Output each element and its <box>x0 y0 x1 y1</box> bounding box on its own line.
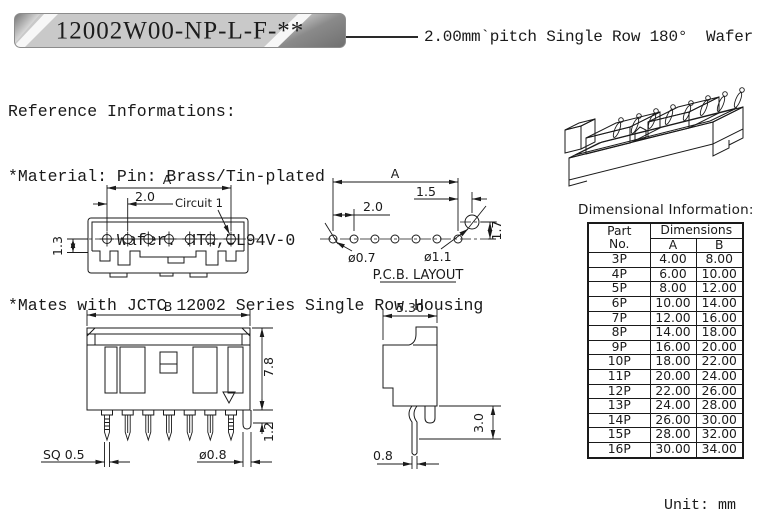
table-cell-a: 10.00 <box>650 296 696 311</box>
top-view-dim-a: A <box>163 172 172 187</box>
table-cell-a: 28.00 <box>650 428 696 443</box>
table-row: 13P24.0028.00 <box>588 399 743 414</box>
table-cell-a: 12.00 <box>650 311 696 326</box>
table-cell-b: 14.00 <box>696 296 743 311</box>
table-cell-part: 5P <box>588 282 650 297</box>
header-no: No. <box>609 237 629 251</box>
table-cell-part: 4P <box>588 267 650 282</box>
unit-label: Unit: mm <box>664 497 736 514</box>
side-view-drawing: 5.30 3.0 0.8 <box>355 295 550 487</box>
table-cell-b: 32.00 <box>696 428 743 443</box>
side-view-dim-tail: 3.0 <box>471 413 486 433</box>
header-part: Part <box>607 224 631 238</box>
table-row: 12P22.0026.00 <box>588 384 743 399</box>
table-cell-b: 34.00 <box>696 442 743 457</box>
table-cell-part: 7P <box>588 311 650 326</box>
table-cell-a: 16.00 <box>650 340 696 355</box>
table-cell-a: 6.00 <box>650 267 696 282</box>
table-row: 5P8.0012.00 <box>588 282 743 297</box>
table-cell-b: 30.00 <box>696 413 743 428</box>
side-view-dim-depth: 5.30 <box>396 300 424 315</box>
table-cell-a: 26.00 <box>650 413 696 428</box>
table-cell-b: 28.00 <box>696 399 743 414</box>
front-view-dim-peg-dia: ø0.8 <box>199 447 227 462</box>
table-row: 10P18.0022.00 <box>588 355 743 370</box>
pcb-layout-drawing: A 1.5 2.0 ø0.7 ø1.1 1.7 P.C.B. LAYOUT <box>310 168 525 293</box>
dimensional-information: Dimensional Information: PartNo. Dimensi… <box>578 202 760 459</box>
table-cell-b: 22.00 <box>696 355 743 370</box>
table-cell-b: 18.00 <box>696 326 743 341</box>
table-cell-b: 8.00 <box>696 253 743 268</box>
table-row: 16P30.0034.00 <box>588 442 743 457</box>
top-view-dim-row: 1.3 <box>50 236 65 256</box>
part-number-banner: 12002W00-NP-L-F-** <box>14 13 346 48</box>
top-view-housing <box>88 218 248 277</box>
front-view-dim-pin-sq: SQ 0.5 <box>43 447 85 462</box>
table-cell-part: 11P <box>588 369 650 384</box>
datasheet-page: 12002W00-NP-L-F-** 2.00mm`pitch Single R… <box>0 0 768 520</box>
pcb-dim-offset: 1.5 <box>416 184 436 199</box>
front-view-dim-height: 7.8 <box>261 357 276 377</box>
table-cell-part: 10P <box>588 355 650 370</box>
header-part-no: PartNo. <box>588 223 650 253</box>
table-cell-a: 8.00 <box>650 282 696 297</box>
table-cell-b: 10.00 <box>696 267 743 282</box>
isometric-view-drawing <box>543 58 768 203</box>
table-cell-part: 6P <box>588 296 650 311</box>
table-row: 11P20.0024.00 <box>588 369 743 384</box>
front-view-dim-standoff: 1.2 <box>261 422 276 442</box>
dimension-table: PartNo. Dimensions A B 3P4.008.004P6.001… <box>587 222 744 459</box>
table-cell-part: 8P <box>588 326 650 341</box>
table-cell-b: 12.00 <box>696 282 743 297</box>
table-row: 14P26.0030.00 <box>588 413 743 428</box>
front-view-pins <box>105 415 234 440</box>
front-view-housing <box>87 328 251 429</box>
table-cell-a: 30.00 <box>650 442 696 457</box>
top-view-drawing: A 2.0 Circuit 1 1.3 <box>15 165 265 303</box>
table-cell-a: 24.00 <box>650 399 696 414</box>
pcb-dim-a: A <box>391 168 400 181</box>
table-cell-part: 16P <box>588 442 650 457</box>
front-view-drawing: B 7.8 1.2 SQ 0.5 ø0.8 <box>25 295 290 487</box>
table-row: 15P28.0032.00 <box>588 428 743 443</box>
table-cell-part: 12P <box>588 384 650 399</box>
top-view-dim-pitch: 2.0 <box>135 189 155 204</box>
side-view-dimensions <box>377 310 501 469</box>
pcb-dim-hole-large: ø1.1 <box>424 249 452 264</box>
pcb-dim-pitch: 2.0 <box>363 199 383 214</box>
dimension-table-body: 3P4.008.004P6.0010.005P8.0012.006P10.001… <box>588 253 743 458</box>
table-cell-b: 24.00 <box>696 369 743 384</box>
header-dim-b: B <box>696 238 743 253</box>
banner-leader-line <box>346 36 418 38</box>
top-view-pins <box>100 232 239 247</box>
reference-title: Reference Informations: <box>8 101 483 123</box>
part-number-text: 12002W00-NP-L-F-** <box>56 18 305 45</box>
table-cell-part: 3P <box>588 253 650 268</box>
table-cell-part: 9P <box>588 340 650 355</box>
table-row: 6P10.0014.00 <box>588 296 743 311</box>
table-cell-b: 16.00 <box>696 311 743 326</box>
page-subtitle: 2.00mm`pitch Single Row 180° Wafer <box>424 28 753 46</box>
table-cell-a: 18.00 <box>650 355 696 370</box>
side-view-profile <box>383 327 437 455</box>
table-cell-part: 14P <box>588 413 650 428</box>
pcb-dim-vertical: 1.7 <box>489 221 504 241</box>
pcb-caption: P.C.B. LAYOUT <box>373 268 464 283</box>
table-cell-a: 22.00 <box>650 384 696 399</box>
table-cell-a: 4.00 <box>650 253 696 268</box>
table-row: 3P4.008.00 <box>588 253 743 268</box>
pcb-centerline <box>320 222 500 239</box>
table-cell-a: 20.00 <box>650 369 696 384</box>
table-row: 7P12.0016.00 <box>588 311 743 326</box>
table-row: 8P14.0018.00 <box>588 326 743 341</box>
header-dimensions: Dimensions <box>650 223 743 238</box>
table-row: 9P16.0020.00 <box>588 340 743 355</box>
top-view-circuit-label: Circuit 1 <box>175 196 223 210</box>
table-cell-b: 26.00 <box>696 384 743 399</box>
front-view-dim-b: B <box>164 299 173 314</box>
table-cell-b: 20.00 <box>696 340 743 355</box>
table-row: 4P6.0010.00 <box>588 267 743 282</box>
header-dim-a: A <box>650 238 696 253</box>
table-cell-part: 15P <box>588 428 650 443</box>
side-view-dim-pin-thickness: 0.8 <box>373 448 393 463</box>
pcb-dim-hole-small: ø0.7 <box>348 250 376 265</box>
banner-graphic: 12002W00-NP-L-F-** <box>14 13 346 48</box>
table-cell-part: 13P <box>588 399 650 414</box>
table-cell-a: 14.00 <box>650 326 696 341</box>
table-title: Dimensional Information: <box>578 202 760 218</box>
